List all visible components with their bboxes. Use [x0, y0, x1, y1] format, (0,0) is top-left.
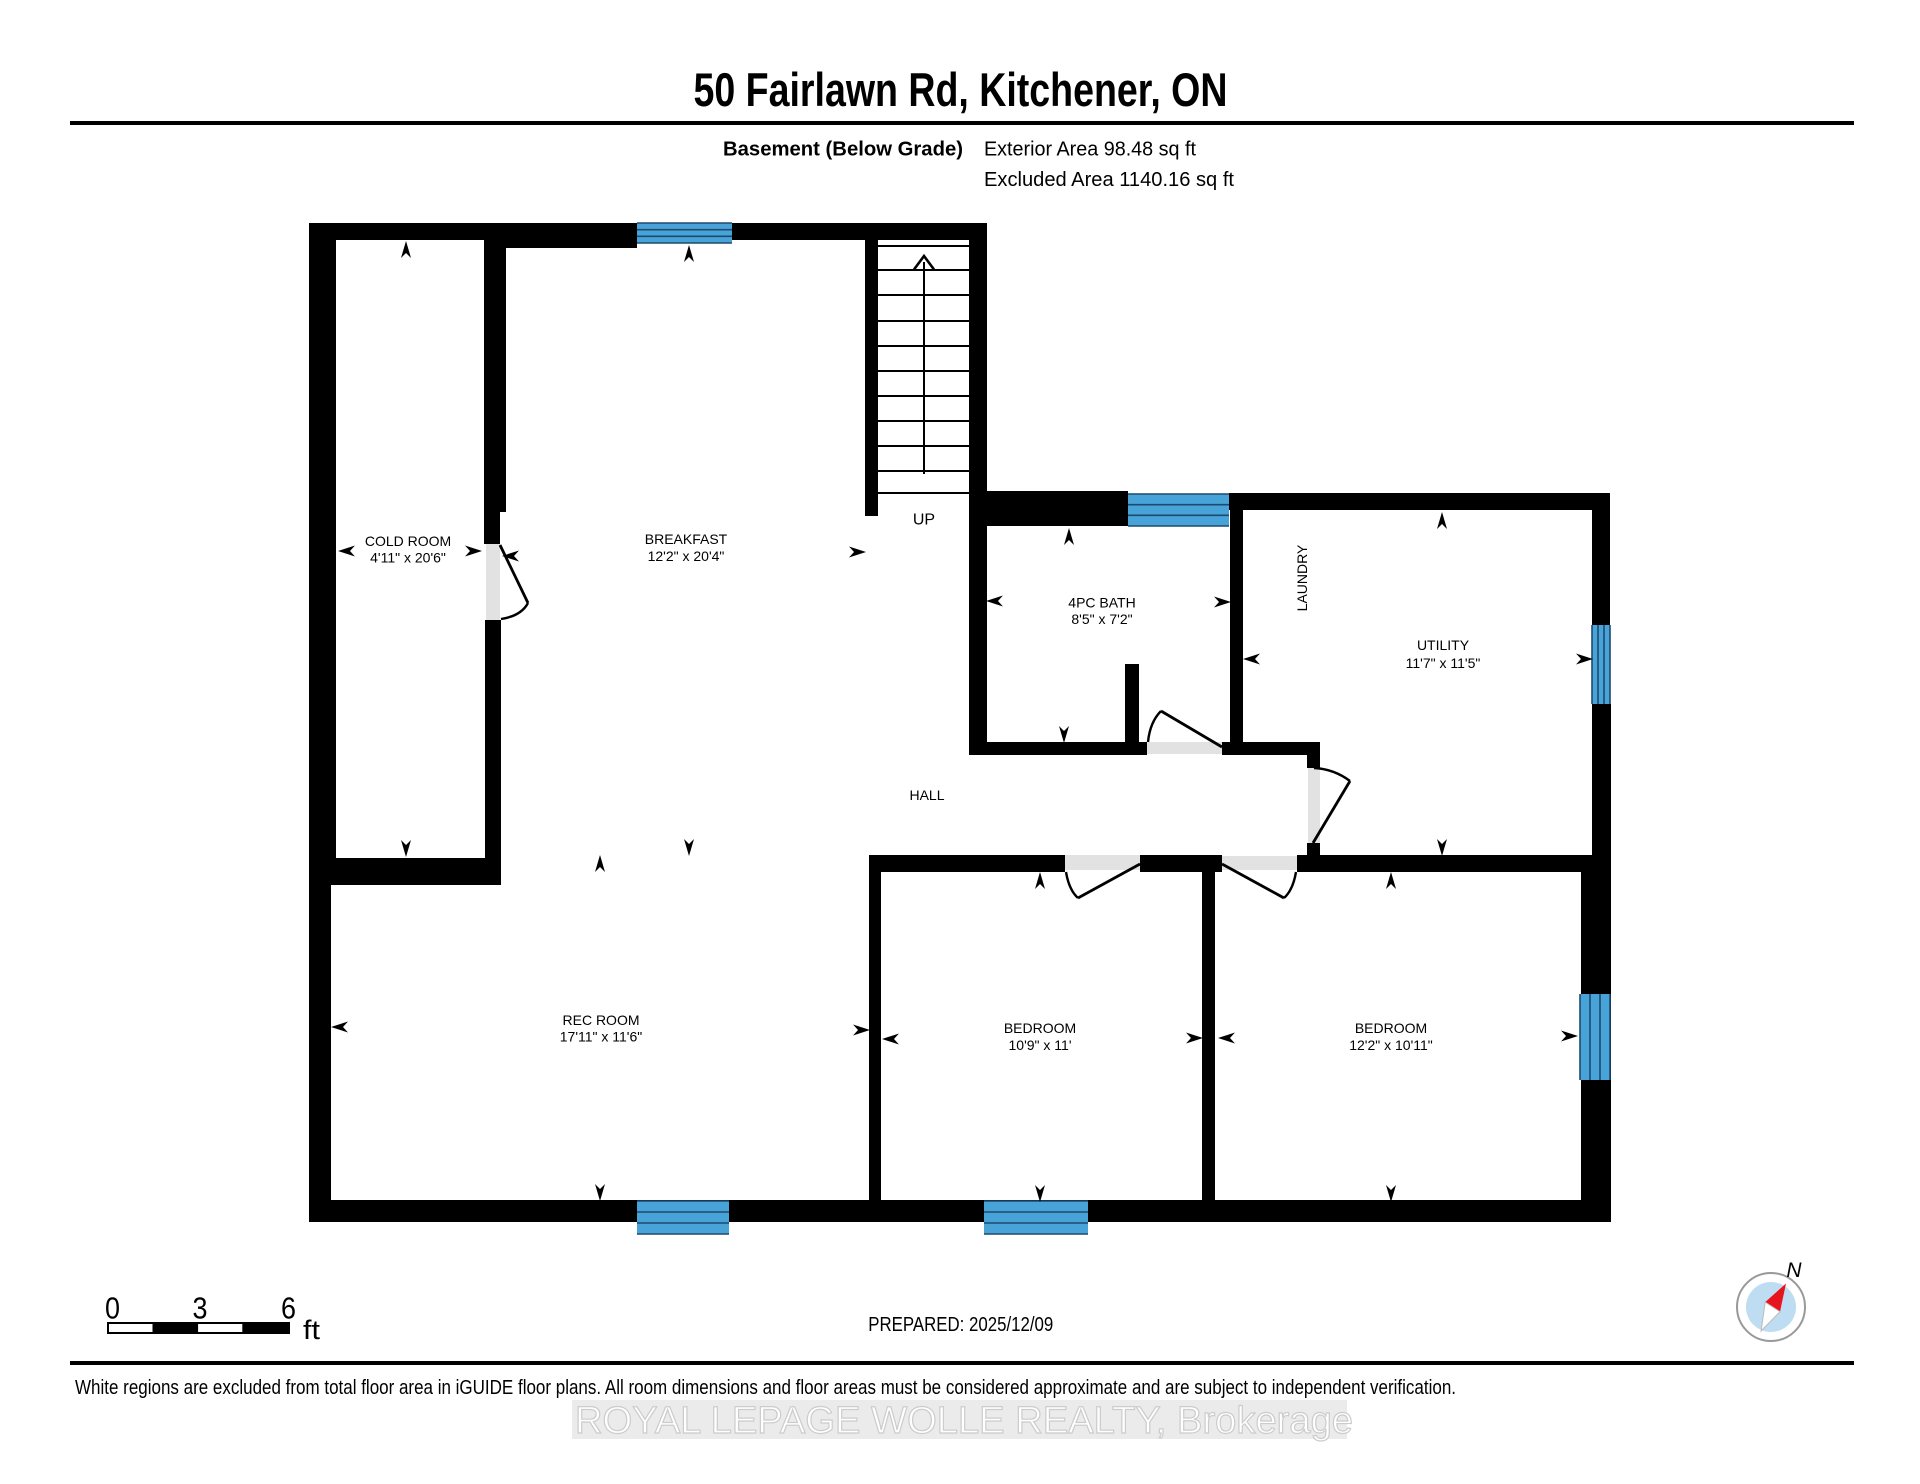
- svg-text:50 Fairlawn Rd, Kitchener, ON: 50 Fairlawn Rd, Kitchener, ON: [694, 63, 1228, 116]
- svg-text:12'2" x 20'4": 12'2" x 20'4": [648, 548, 725, 564]
- svg-text:UTILITY: UTILITY: [1417, 637, 1470, 653]
- svg-text:4PC BATH: 4PC BATH: [1068, 595, 1135, 611]
- svg-text:10'9" x 11': 10'9" x 11': [1009, 1037, 1072, 1053]
- svg-text:Exterior Area 98.48 sq ft: Exterior Area 98.48 sq ft: [984, 139, 1196, 161]
- svg-text:COLD ROOM: COLD ROOM: [365, 533, 451, 549]
- svg-text:8'5" x 7'2": 8'5" x 7'2": [1071, 611, 1132, 627]
- svg-text:ROYAL LEPAGE WOLLE REALTY, Bro: ROYAL LEPAGE WOLLE REALTY, Brokerage: [575, 1400, 1353, 1442]
- svg-text:ft: ft: [303, 1315, 321, 1345]
- svg-text:Basement (Below Grade): Basement (Below Grade): [723, 139, 963, 161]
- svg-text:BEDROOM: BEDROOM: [1355, 1020, 1427, 1036]
- svg-text:White regions are excluded fro: White regions are excluded from total fl…: [75, 1377, 1456, 1399]
- svg-text:N: N: [1786, 1259, 1802, 1282]
- svg-text:UP: UP: [913, 512, 935, 529]
- svg-text:Excluded Area 1140.16 sq ft: Excluded Area 1140.16 sq ft: [984, 169, 1234, 191]
- svg-text:4'11" x 20'6": 4'11" x 20'6": [370, 550, 446, 566]
- svg-text:17'11" x 11'6": 17'11" x 11'6": [560, 1029, 643, 1045]
- svg-text:BEDROOM: BEDROOM: [1004, 1020, 1076, 1036]
- svg-text:LAUNDRY: LAUNDRY: [1294, 544, 1310, 611]
- svg-text:0: 0: [105, 1291, 120, 1326]
- svg-text:REC ROOM: REC ROOM: [563, 1012, 640, 1028]
- svg-text:BREAKFAST: BREAKFAST: [645, 531, 728, 547]
- svg-text:HALL: HALL: [909, 787, 944, 803]
- svg-text:PREPARED: 2025/12/09: PREPARED: 2025/12/09: [868, 1314, 1053, 1336]
- svg-text:12'2" x 10'11": 12'2" x 10'11": [1349, 1037, 1433, 1053]
- svg-text:3: 3: [193, 1291, 208, 1326]
- svg-text:11'7" x 11'5": 11'7" x 11'5": [1406, 655, 1481, 671]
- svg-text:6: 6: [281, 1291, 296, 1326]
